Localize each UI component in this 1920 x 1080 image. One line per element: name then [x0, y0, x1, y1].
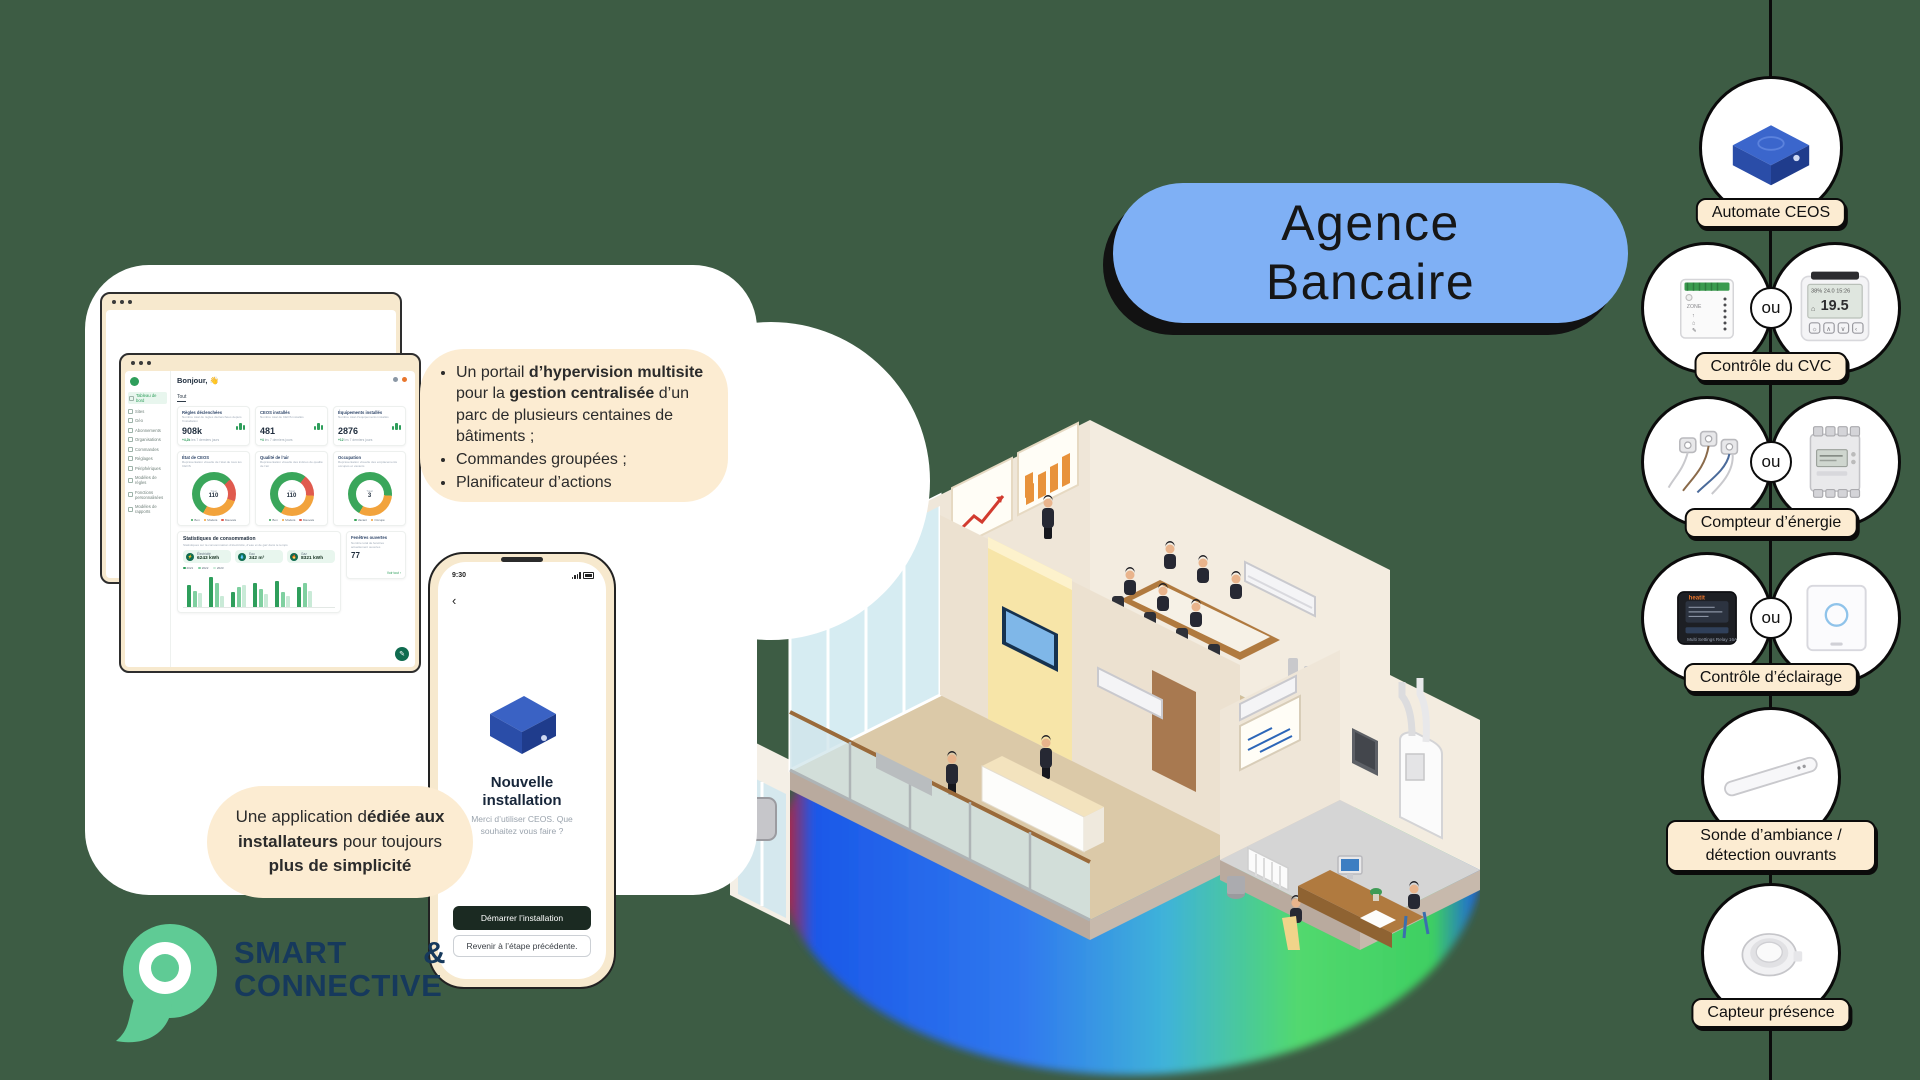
sidebar-item[interactable]: Modèles de rapports	[128, 504, 167, 514]
cvc-module-icon: ZONE ↑⌂✎	[1662, 258, 1752, 358]
window-dot	[112, 300, 116, 304]
water-icon: 💧	[238, 553, 246, 561]
phone-speaker	[501, 557, 543, 562]
svg-text:⌂: ⌂	[1692, 321, 1695, 327]
window-dot	[131, 361, 135, 365]
svg-text:☼: ☼	[1812, 326, 1818, 333]
page: Tableau de bordSitesGéoAbonnementsOrgani…	[0, 0, 1920, 1080]
svg-text:✎: ✎	[1692, 328, 1696, 334]
bar-icon	[314, 423, 324, 430]
bar-icon	[392, 423, 402, 430]
window-dot	[128, 300, 132, 304]
svg-text:‹: ‹	[1855, 326, 1857, 333]
or-connector: ou	[1750, 441, 1792, 483]
stat-card: CEOS installés Nombre total de CEOS inst…	[255, 406, 328, 446]
phone-time: 9:30	[452, 572, 466, 579]
device-label: Automate CEOS	[1696, 198, 1846, 228]
stat-card: Équipements installés Nombre total d’équ…	[333, 406, 406, 446]
svg-text:↑: ↑	[1692, 313, 1695, 319]
sidebar-item[interactable]: Sites	[128, 409, 167, 414]
agence-bancaire-title: Agence Bancaire	[1113, 183, 1628, 323]
dashboard-greeting: Bonjour, 👋	[177, 376, 409, 385]
donut-cards-row: État de CEOS Représentation visuelle de …	[177, 451, 409, 526]
svg-text:Multi Settings Relay 16A: Multi Settings Relay 16A	[1687, 637, 1738, 642]
dashboard-main: Bonjour, 👋 Tout Règles déclenchées Nombr…	[171, 371, 415, 667]
browser-titlebar	[102, 294, 400, 310]
previous-step-button[interactable]: Revenir à l’étape précédente.	[453, 935, 591, 957]
svg-text:⌂: ⌂	[1811, 304, 1815, 313]
svg-text:∧: ∧	[1826, 326, 1831, 333]
device-label: Contrôle du CVC	[1695, 352, 1848, 382]
window-dot	[139, 361, 143, 365]
meter-water: 💧Eau342 m³	[235, 550, 283, 563]
donut-card-ceos: État de CEOS Représentation visuelle de …	[177, 451, 250, 526]
consumption-bars	[183, 571, 335, 608]
consumption-card: Statistiques de consommation Statistique…	[177, 531, 341, 613]
presence-sensor-icon	[1719, 901, 1823, 1005]
bar-icon	[236, 423, 246, 430]
svg-text:19.5: 19.5	[1821, 298, 1849, 314]
or-connector: ou	[1750, 597, 1792, 639]
sidebar-item[interactable]: Modèles de règles	[128, 475, 167, 485]
sidebar-item[interactable]: Tableau de bord	[128, 392, 167, 404]
sidebar-item[interactable]: Commandes	[128, 447, 167, 452]
browser-window-front: Tableau de bordSitesGéoAbonnementsOrgani…	[119, 353, 421, 673]
stat-cards-row: Règles déclenchées Nombre total de règle…	[177, 406, 409, 446]
battery-icon	[583, 572, 594, 579]
ceos-box-icon	[1716, 98, 1826, 198]
device-label: Sonde d’ambiance / détection ouvrants	[1666, 820, 1876, 872]
signal-icon	[572, 572, 581, 579]
sidebar-item[interactable]: Périphériques	[128, 466, 167, 471]
gas-icon: 🔥	[290, 553, 298, 561]
edit-fab-button[interactable]: ✎	[395, 647, 409, 661]
logo-wordmark: SMART& CONNECTIVE	[234, 937, 446, 1002]
thermostat-icon: 38% 24.0 15:26 19.5 ⌂ ☼∧∨‹	[1787, 262, 1883, 354]
phone-screen-subtitle: Merci d’utiliser CEOS. Que souhaitez vou…	[458, 814, 586, 838]
gear-icon[interactable]	[393, 377, 398, 382]
phone-screen: 9:30 ‹ Nouvelleinstallation Merci d’util…	[438, 562, 606, 979]
logo-swirl-icon	[108, 915, 220, 1045]
sidebar-item[interactable]: Organisations	[128, 437, 167, 442]
meter-gas: 🔥Gaz8321 kWh	[287, 550, 335, 563]
or-connector: ou	[1750, 287, 1792, 329]
sidebar-item[interactable]: Abonnements	[128, 428, 167, 433]
stat-card: Règles déclenchées Nombre total de règle…	[177, 406, 250, 446]
smart-connective-logo: SMART& CONNECTIVE	[108, 915, 446, 1045]
ceos-box-image	[480, 690, 564, 760]
open-windows-card: Fenêtres ouvertes Nombre total de fenêtr…	[346, 531, 406, 579]
start-installation-button[interactable]: Démarrer l’installation	[453, 906, 591, 930]
window-dot	[147, 361, 151, 365]
sidebar-item[interactable]: Fonctions personnalisées	[128, 490, 167, 500]
tab-tout[interactable]: Tout	[177, 394, 186, 402]
window-dot	[120, 300, 124, 304]
phone-screen-title: Nouvelleinstallation	[438, 774, 606, 810]
donut-card-air: Qualité de l’air Représentation visuelle…	[255, 451, 328, 526]
see-all-link[interactable]: Voir tout ›	[387, 571, 401, 575]
device-label: Capteur présence	[1691, 998, 1850, 1028]
hypervision-callout: Un portail d’hypervision multisite pour …	[420, 349, 728, 502]
electricity-icon: ⚡	[186, 553, 194, 561]
device-label: Compteur d’énergie	[1685, 508, 1858, 538]
ambient-probe-icon	[1716, 722, 1826, 832]
din-meter-icon	[1789, 414, 1881, 510]
meter-electricity: ⚡Électricité6243 kWh	[183, 550, 231, 563]
device-label: Contrôle d’éclairage	[1684, 663, 1858, 693]
sidebar-item[interactable]: Géo	[128, 418, 167, 423]
touch-switch-icon	[1789, 572, 1881, 664]
relay-module-icon: heatit Multi Settings Relay 16A	[1661, 572, 1753, 664]
svg-text:∨: ∨	[1841, 326, 1846, 333]
svg-text:heatit: heatit	[1689, 595, 1705, 602]
svg-text:ZONE: ZONE	[1687, 304, 1702, 310]
wave-emoji: 👋	[210, 376, 219, 385]
donut-card-occupation: Occupation Représentation visuelle des e…	[333, 451, 406, 526]
installer-phone-mockup: 9:30 ‹ Nouvelleinstallation Merci d’util…	[428, 552, 616, 989]
svg-text:38% 24.0 15:26: 38% 24.0 15:26	[1811, 288, 1850, 294]
installer-app-callout: Une application dédiée aux installateurs…	[207, 786, 473, 898]
sidebar-item[interactable]: Réglages	[128, 456, 167, 461]
notification-bell-icon[interactable]	[402, 377, 407, 382]
dashboard: Tableau de bordSitesGéoAbonnementsOrgani…	[125, 371, 415, 667]
browser-titlebar	[121, 355, 419, 371]
back-chevron-icon[interactable]: ‹	[452, 594, 456, 607]
current-clamps-icon	[1659, 414, 1755, 510]
dashboard-logo	[130, 377, 139, 386]
dashboard-sidebar: Tableau de bordSitesGéoAbonnementsOrgani…	[125, 371, 171, 667]
